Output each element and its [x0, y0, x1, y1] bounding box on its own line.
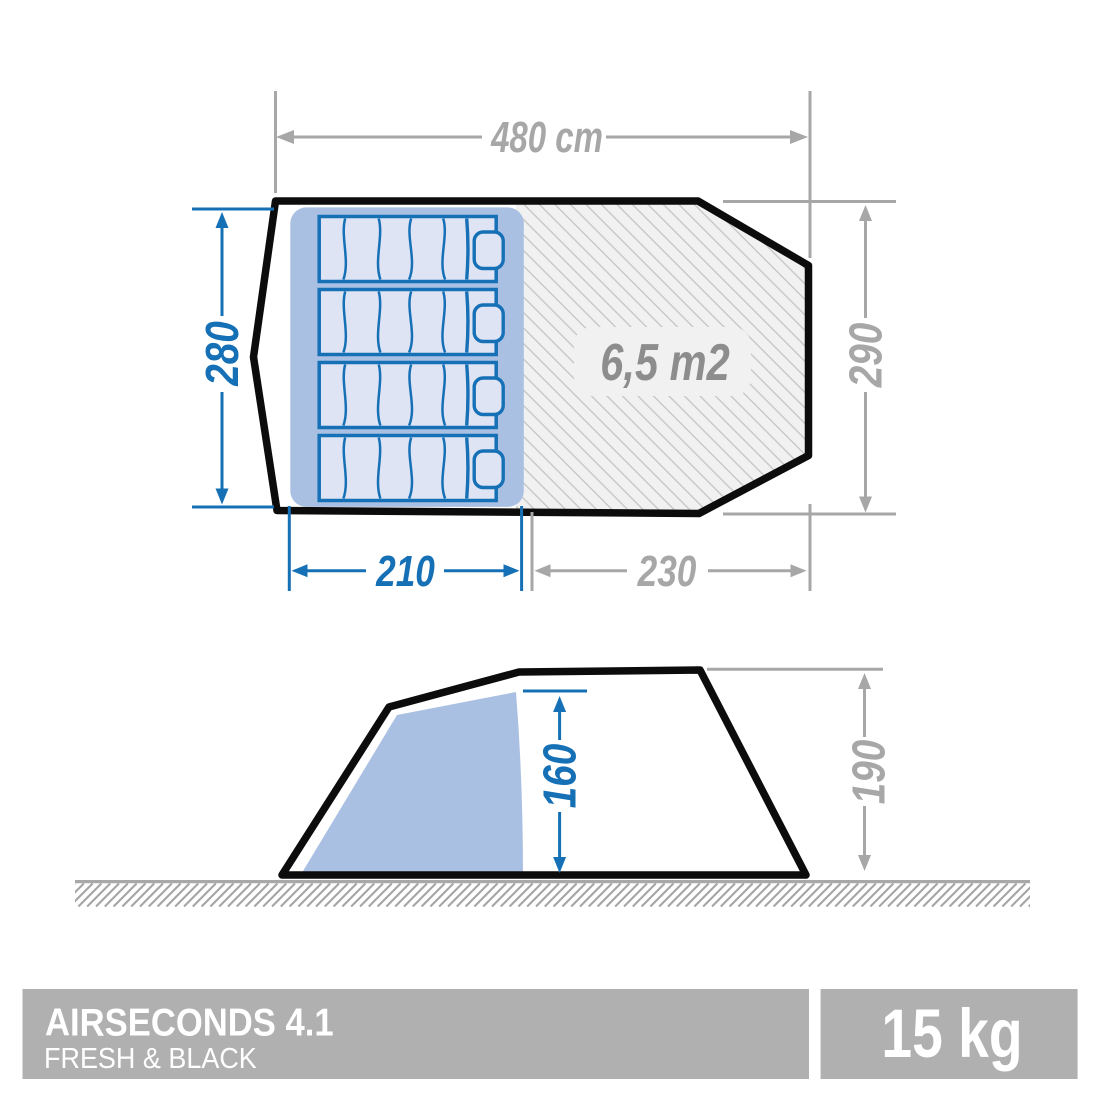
svg-text:AIRSECONDS 4.1: AIRSECONDS 4.1 [45, 1001, 334, 1044]
svg-text:FRESH & BLACK: FRESH & BLACK [44, 1042, 257, 1074]
svg-text:210: 210 [375, 547, 435, 596]
svg-text:190: 190 [843, 739, 894, 804]
svg-text:6,5 m2: 6,5 m2 [600, 333, 729, 392]
svg-text:480 cm: 480 cm [490, 114, 603, 163]
svg-text:15 kg: 15 kg [881, 995, 1022, 1072]
svg-text:280: 280 [197, 321, 248, 387]
svg-text:160: 160 [535, 743, 586, 808]
svg-text:230: 230 [637, 547, 697, 596]
svg-text:290: 290 [840, 322, 891, 388]
